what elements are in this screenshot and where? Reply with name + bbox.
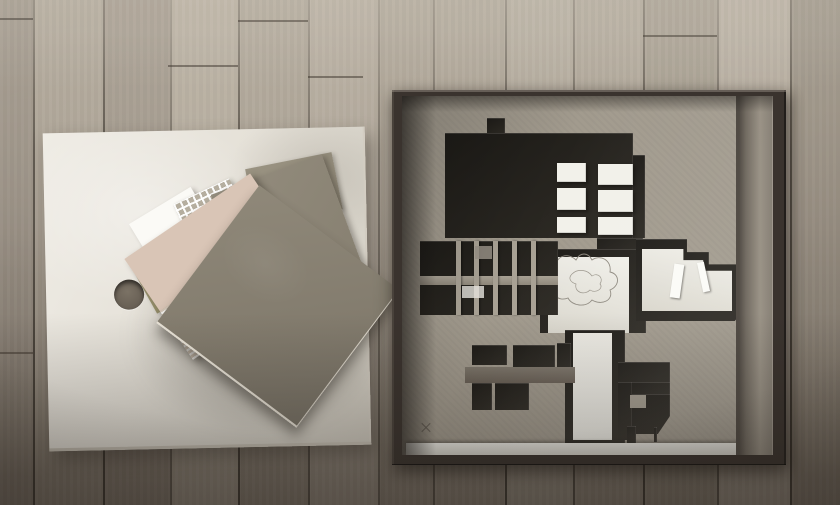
cell-corridor — [420, 276, 558, 285]
foam-block — [598, 190, 633, 212]
plank-end-joint — [168, 65, 238, 67]
plank-end-joint — [0, 18, 33, 20]
room-cut — [557, 343, 571, 367]
se-cut-notch — [630, 395, 646, 408]
cell-partition — [493, 241, 498, 315]
white-base-strip — [406, 443, 766, 455]
sunken-terrace — [465, 367, 575, 383]
room-cut — [472, 383, 492, 410]
south-tab-thin — [654, 427, 657, 442]
room-cut — [513, 345, 555, 367]
plank-end-joint — [308, 76, 363, 78]
photo-architectural-models — [0, 0, 840, 505]
plank-end-joint — [238, 20, 308, 22]
room-cut — [495, 383, 529, 410]
corridor-white-lower — [573, 333, 612, 440]
cell-partition — [456, 241, 461, 315]
box-inner-wall-top-shadow — [402, 96, 773, 112]
plank-end-joint — [0, 352, 33, 354]
box-inner-wall-right — [736, 96, 773, 455]
south-tab — [627, 426, 636, 443]
plank-seam — [378, 0, 380, 505]
recess-notch — [487, 118, 505, 133]
foam-block — [598, 217, 633, 235]
plank-end-joint — [643, 35, 717, 37]
cell-partition — [531, 241, 536, 315]
wooden-model-box — [392, 90, 786, 465]
recess-east-wall — [633, 155, 645, 238]
foam-block — [557, 163, 586, 182]
cell-floor-grey — [475, 246, 492, 259]
cell-floor-white — [462, 286, 484, 298]
chipboard-floorplan-inlay — [402, 96, 773, 455]
cell-partition — [512, 241, 517, 315]
floor-plank — [0, 0, 33, 505]
plank-seam — [790, 0, 792, 505]
box-inner-wall-left-shadow — [402, 96, 436, 455]
se-cut-mid — [632, 382, 670, 394]
room-cut — [472, 345, 507, 365]
foam-block — [557, 188, 586, 210]
floor-plank — [790, 0, 840, 505]
plywood-base-board — [43, 127, 372, 452]
foam-block — [557, 217, 586, 233]
foam-block — [598, 164, 633, 185]
se-cut-bar — [618, 362, 670, 382]
plank-seam — [33, 0, 35, 505]
